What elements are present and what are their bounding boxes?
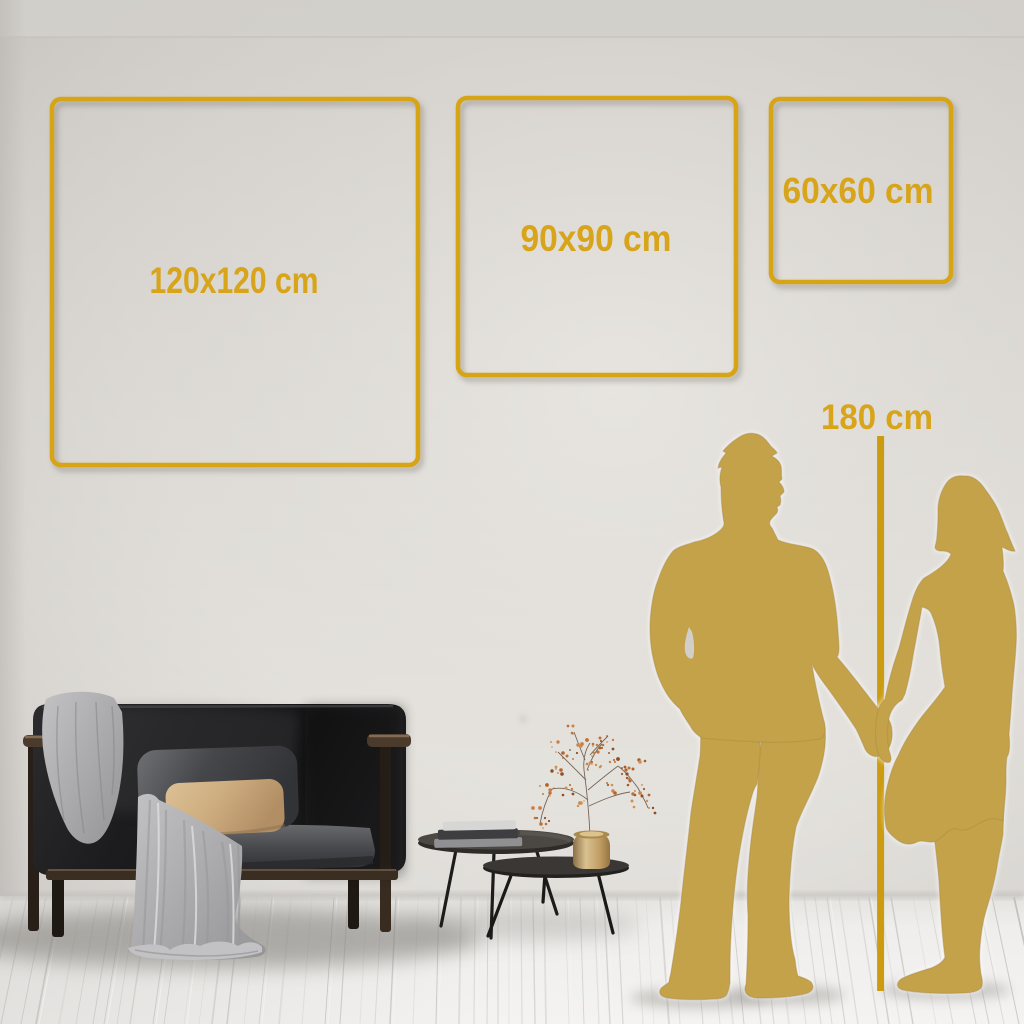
svg-text:60x60 cm: 60x60 cm: [783, 170, 934, 211]
svg-text:90x90 cm: 90x90 cm: [521, 218, 672, 259]
svg-text:120x120 cm: 120x120 cm: [150, 260, 319, 301]
svg-text:180 cm: 180 cm: [821, 398, 933, 437]
